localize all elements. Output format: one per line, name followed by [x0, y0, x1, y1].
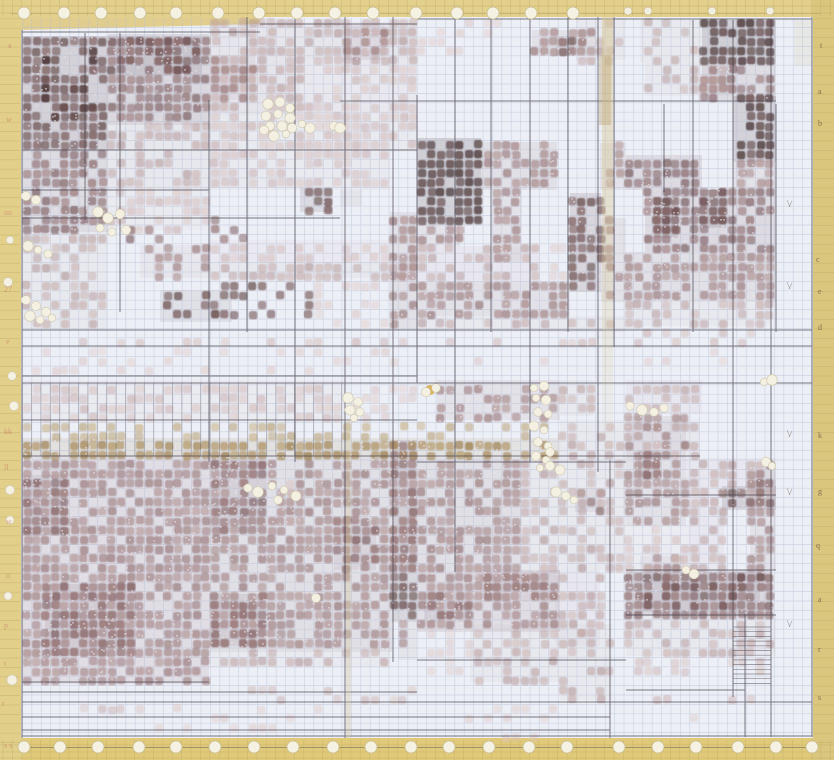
svg-text:r: r: [818, 645, 821, 654]
svg-text:kk: kk: [4, 427, 12, 436]
svg-text:p: p: [4, 621, 8, 630]
svg-text:d: d: [818, 323, 822, 332]
svg-text:w: w: [6, 115, 12, 124]
svg-text:ll: ll: [4, 463, 9, 472]
svg-text:e: e: [6, 337, 10, 346]
svg-text:a: a: [8, 41, 12, 50]
svg-text:b: b: [818, 119, 822, 128]
svg-text:s: s: [818, 693, 821, 702]
svg-text:e: e: [818, 287, 822, 296]
svg-text:c: c: [816, 255, 820, 264]
svg-text:w: w: [6, 517, 12, 526]
svg-text:s s: s s: [4, 741, 12, 750]
svg-text:r: r: [2, 699, 5, 708]
svg-text:a: a: [818, 87, 822, 96]
svg-text:g: g: [818, 487, 822, 496]
svg-text:oo: oo: [4, 208, 12, 217]
svg-text:k: k: [818, 431, 822, 440]
svg-text:o: o: [6, 571, 10, 580]
svg-text:27: 27: [4, 285, 12, 294]
svg-text:q: q: [816, 541, 820, 550]
svg-text:a: a: [818, 595, 822, 604]
